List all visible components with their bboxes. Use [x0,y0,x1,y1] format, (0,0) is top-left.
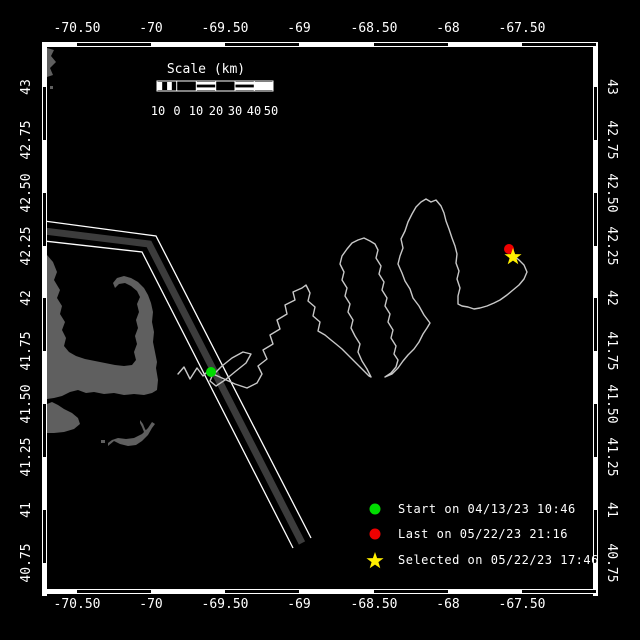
axis-tick-label: 42.50 [604,173,618,212]
border-segment [77,43,151,46]
border-segment [374,590,448,593]
axis-tick-label: 42 [20,290,34,306]
legend-item-start: Start on 04/13/23 10:46 [364,497,576,521]
axis-tick-label: -70 [139,598,162,612]
border-segment [594,298,597,351]
axis-tick-label: -68.50 [351,22,398,36]
axis-tick-label: -69.50 [202,598,249,612]
axis-tick-label: 42.75 [20,120,34,159]
axis-tick-label: -70.50 [54,22,101,36]
axis-tick-label: 41.25 [604,437,618,476]
axis-tick-label: 41 [604,502,618,518]
legend-item-selected: Selected on 05/22/23 17:46 [364,548,599,572]
axis-tick-label: 40.75 [20,543,34,582]
scale-bar-number: 50 [264,104,278,118]
legend-last-label: Last on 05/22/23 21:16 [398,527,568,541]
axis-tick-label: -68 [436,598,459,612]
scale-bar-title: Scale (km) [167,62,245,77]
border-segment [594,404,597,457]
axis-tick-label: -69 [287,598,310,612]
axis-tick-label: -69.50 [202,22,249,36]
border-segment [77,590,151,593]
track-map-window: -70.50-70-69.50-69-68.50-68-67.50 -70.50… [0,0,640,640]
legend-selected-label: Selected on 05/22/23 17:46 [398,553,599,567]
axis-tick-label: 43 [604,79,618,95]
start-marker[interactable] [206,367,216,377]
scale-bar-number: 0 [173,104,180,118]
coastline-speck [50,86,53,89]
axis-tick-label: 41 [20,502,34,518]
axis-tick-label: 41.75 [604,331,618,370]
border-segment [522,43,596,46]
axis-tick-label: -67.50 [499,22,546,36]
border-segment [225,43,299,46]
scale-bar-number: 30 [228,104,242,118]
legend-item-last: Last on 05/22/23 21:16 [364,522,568,546]
axis-tick-label: 42.50 [20,173,34,212]
scale-bar-number: 10 [151,104,165,118]
legend-start-label: Start on 04/13/23 10:46 [398,502,576,516]
axis-tick-label: -70.50 [54,598,101,612]
axis-tick-label: 42 [604,290,618,306]
axis-tick-label: -68.50 [351,598,398,612]
axis-tick-label: 41.25 [20,437,34,476]
border-segment [374,43,448,46]
axis-tick-label: 42.25 [20,226,34,265]
border-segment [522,590,596,593]
axis-tick-label: 41.75 [20,331,34,370]
axis-tick-label: 41.50 [20,384,34,423]
scale-bar [157,81,273,91]
axis-tick-label: -68 [436,22,459,36]
axis-tick-label: -69 [287,22,310,36]
axis-tick-label: -67.50 [499,598,546,612]
border-segment [43,193,46,246]
border-segment [594,87,597,140]
last-dot-icon [364,523,386,545]
border-segment [225,590,299,593]
axis-tick-label: 41.50 [604,384,618,423]
border-segment [43,404,46,457]
scale-bar-number: 40 [247,104,261,118]
island-speck [101,440,105,443]
axis-tick-label: 42.75 [604,120,618,159]
border-segment [43,87,46,140]
start-dot-icon [364,498,386,520]
border-segment [43,510,46,563]
border-segment [43,298,46,351]
selected-star-icon [364,549,386,571]
axis-tick-label: -70 [139,22,162,36]
axis-tick-label: 43 [20,79,34,95]
axis-tick-label: 42.25 [604,226,618,265]
border-segment [594,193,597,246]
scale-bar-number: 10 [189,104,203,118]
axis-tick-label: 40.75 [604,543,618,582]
scale-bar-number: 20 [209,104,223,118]
